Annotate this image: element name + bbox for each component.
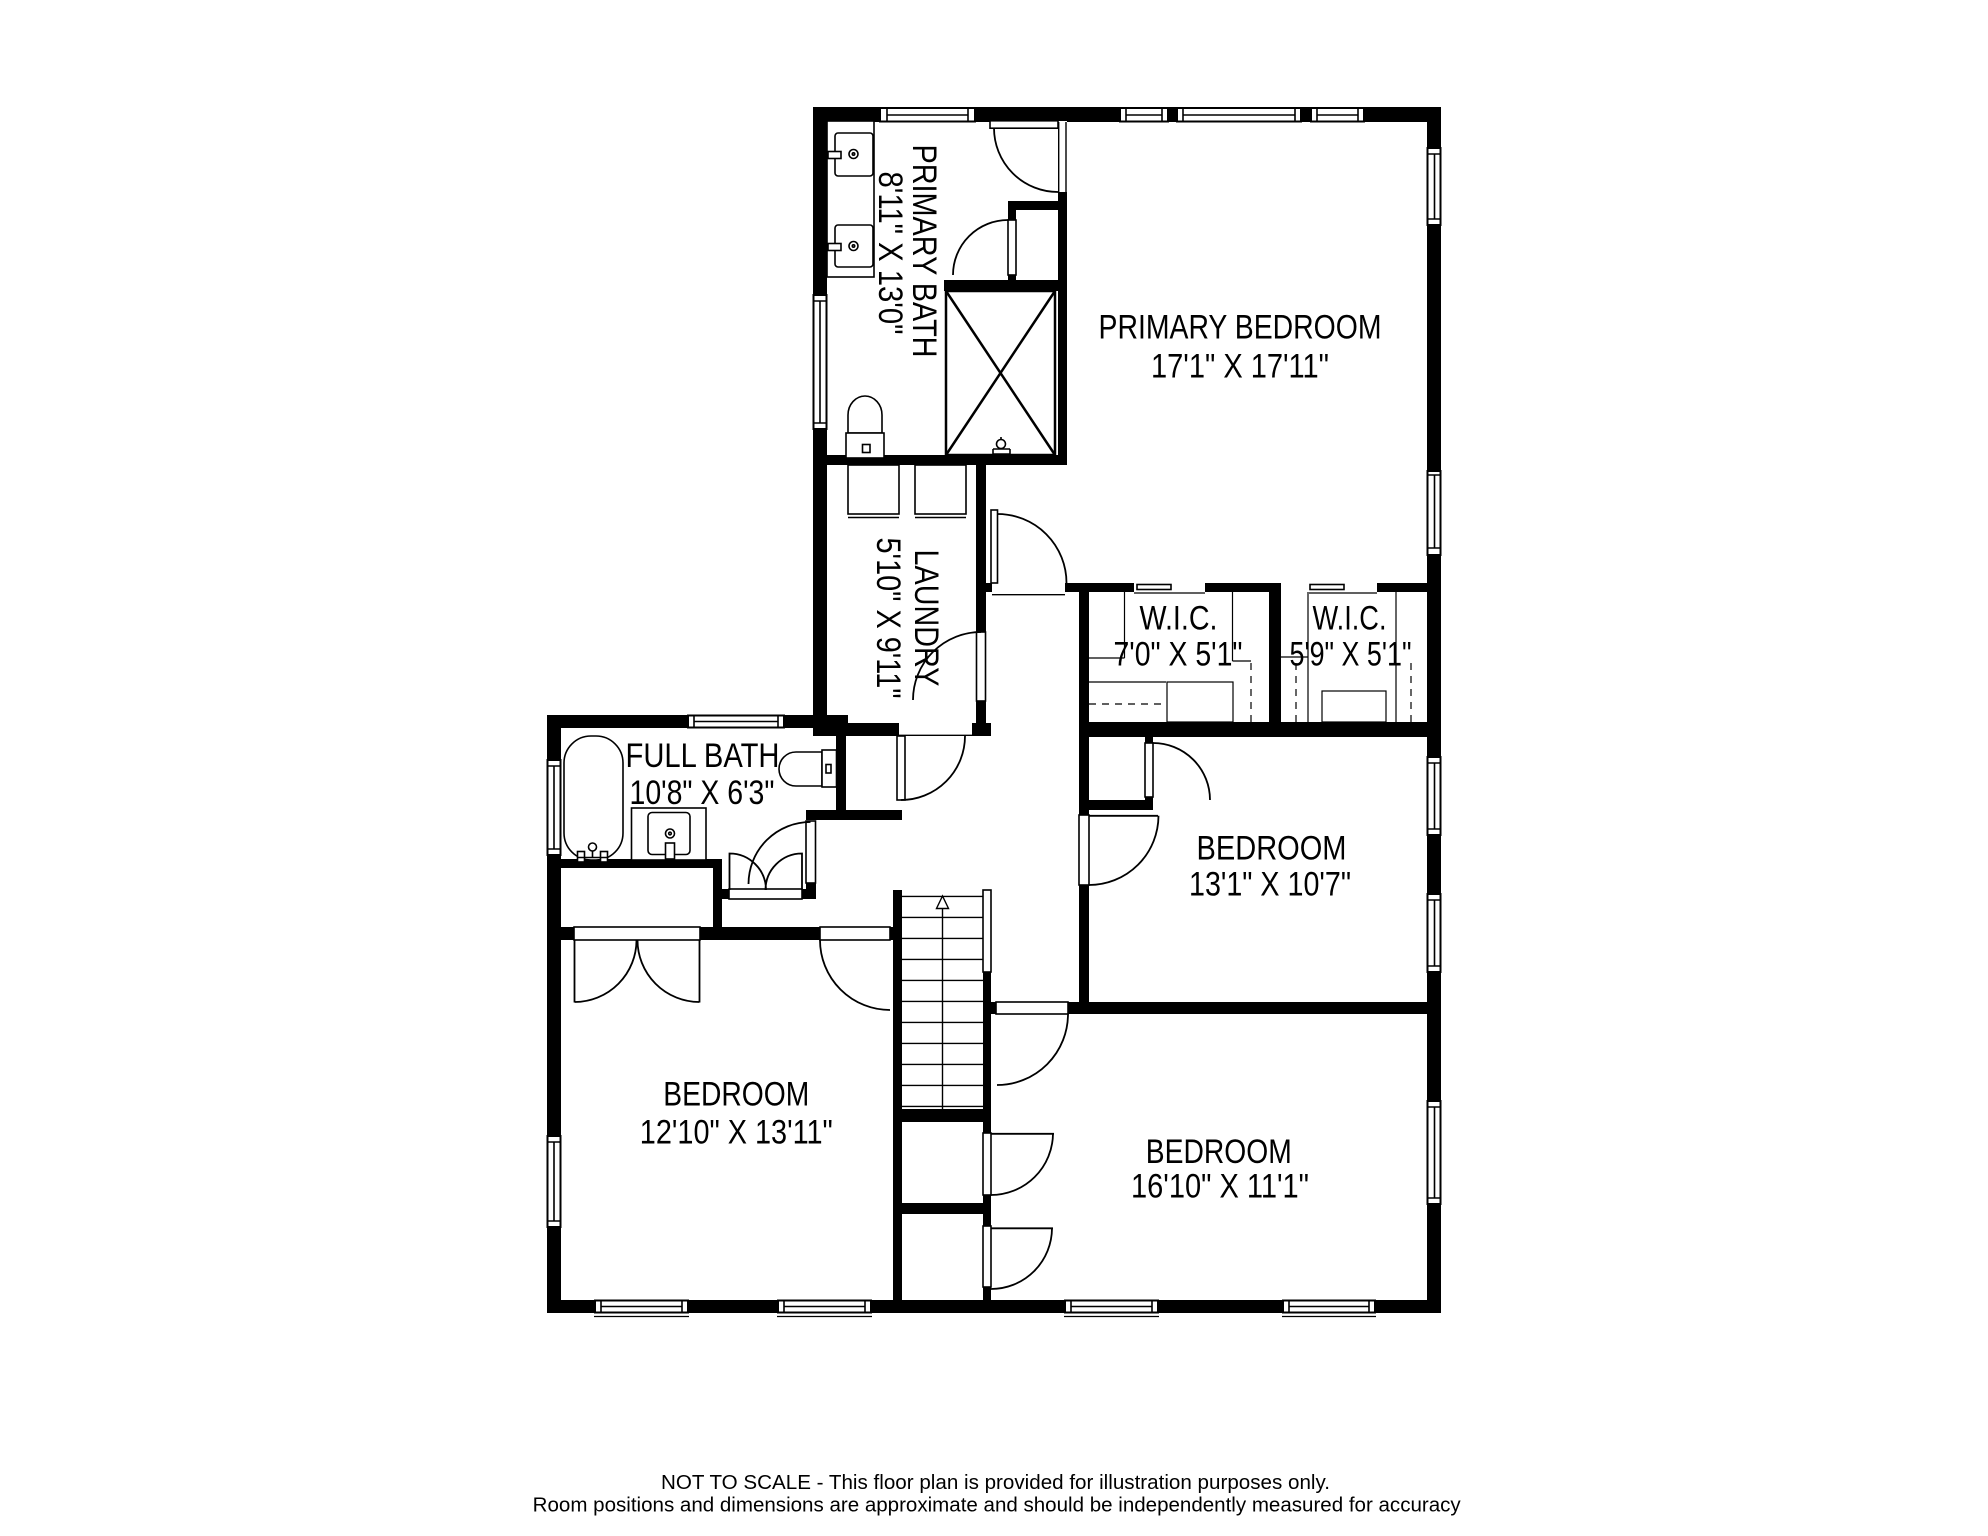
svg-text:7'0" X 5'1": 7'0" X 5'1" bbox=[1114, 636, 1243, 674]
svg-text:W.I.C.: W.I.C. bbox=[1313, 600, 1387, 638]
svg-text:16'10" X 11'1": 16'10" X 11'1" bbox=[1131, 1167, 1309, 1205]
svg-text:W.I.C.: W.I.C. bbox=[1140, 600, 1218, 638]
svg-text:Room positions and dimensions: Room positions and dimensions are approx… bbox=[533, 1495, 1461, 1517]
svg-text:5'9" X 5'1": 5'9" X 5'1" bbox=[1290, 636, 1412, 674]
svg-text:FULL BATH: FULL BATH bbox=[626, 737, 780, 775]
svg-text:PRIMARY BATH: PRIMARY BATH bbox=[905, 145, 943, 358]
svg-text:NOT TO SCALE - This floor plan: NOT TO SCALE - This floor plan is provid… bbox=[661, 1472, 1330, 1494]
svg-text:8'11" X 13'0": 8'11" X 13'0" bbox=[871, 172, 909, 335]
svg-text:LAUNDRY: LAUNDRY bbox=[907, 550, 945, 687]
svg-text:17'1" X 17'11": 17'1" X 17'11" bbox=[1151, 348, 1329, 386]
svg-text:13'1" X 10'7": 13'1" X 10'7" bbox=[1189, 866, 1351, 904]
svg-text:10'8" X 6'3": 10'8" X 6'3" bbox=[630, 774, 775, 812]
svg-text:BEDROOM: BEDROOM bbox=[663, 1076, 809, 1114]
svg-text:BEDROOM: BEDROOM bbox=[1197, 829, 1347, 867]
svg-text:PRIMARY BEDROOM: PRIMARY BEDROOM bbox=[1099, 309, 1382, 347]
svg-text:BEDROOM: BEDROOM bbox=[1146, 1133, 1292, 1171]
svg-text:5'10" X 9'11": 5'10" X 9'11" bbox=[869, 538, 907, 699]
svg-text:12'10" X 13'11": 12'10" X 13'11" bbox=[640, 1114, 833, 1152]
